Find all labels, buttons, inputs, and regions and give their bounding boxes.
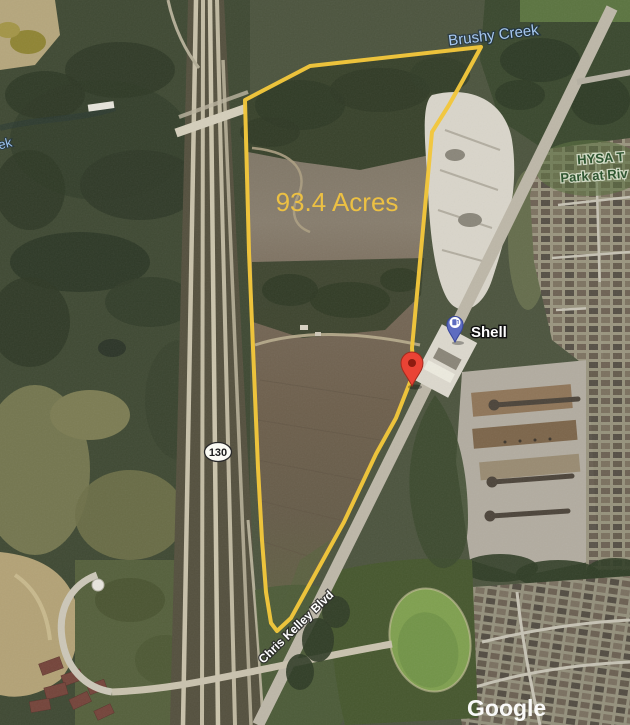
google-watermark[interactable]: Google: [467, 695, 546, 721]
map-canvas[interactable]: Brushy Creek ek 93.4 Acres HYSA T Park a…: [0, 0, 630, 725]
highway-shield: 130: [205, 443, 232, 462]
highway-shield-label: 130: [209, 447, 227, 459]
shell-label: Shell: [471, 324, 507, 341]
acreage-label: 93.4 Acres: [276, 187, 399, 217]
satellite-imagery: Brushy Creek ek 93.4 Acres HYSA T Park a…: [0, 0, 630, 725]
